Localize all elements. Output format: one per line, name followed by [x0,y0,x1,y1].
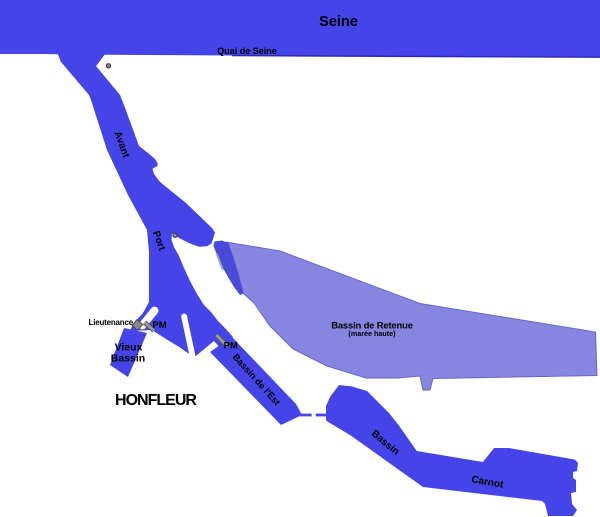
svg-text:PM: PM [224,341,238,352]
svg-text:PM: PM [152,320,166,331]
svg-text:(marée haute): (marée haute) [348,329,396,338]
svg-text:Seine: Seine [319,14,358,30]
svg-text:Lieutenance: Lieutenance [89,318,134,327]
svg-text:HONFLEUR: HONFLEUR [115,392,197,409]
svg-text:Quai de Seine: Quai de Seine [217,46,277,56]
svg-text:Bassin: Bassin [111,353,145,365]
